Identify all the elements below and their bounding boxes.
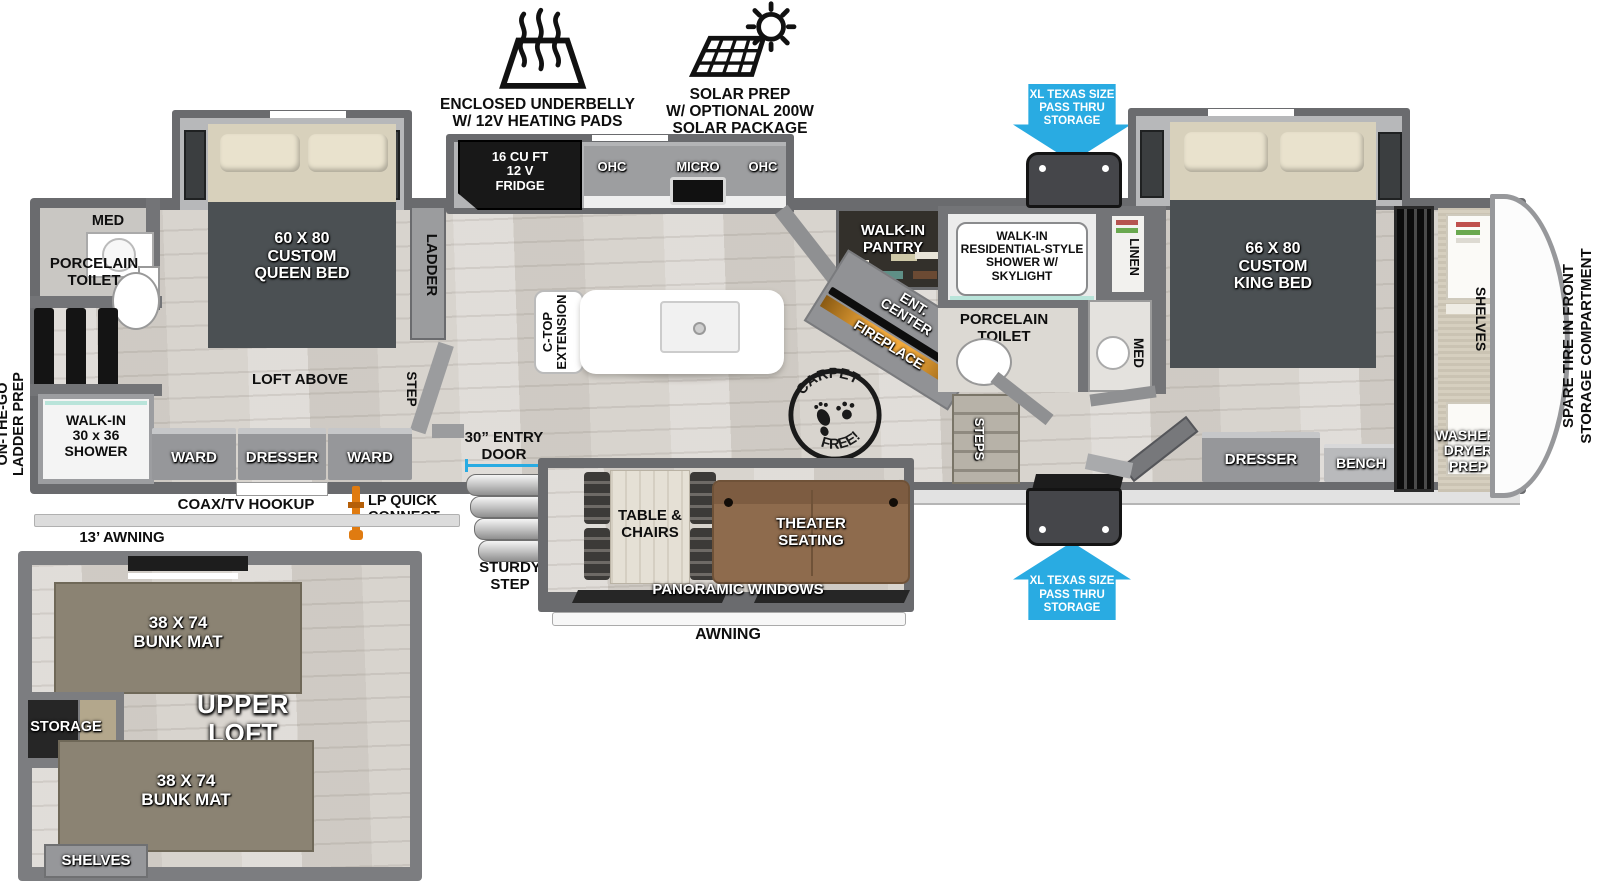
rear-med-label: MED — [70, 214, 146, 230]
cooktop-icon — [670, 177, 726, 205]
dresser-cabinet: DRESSER — [238, 428, 326, 480]
underbelly-label: ENCLOSED UNDERBELLY W/ 12V HEATING PADS — [425, 96, 650, 130]
king-bed: 66 X 80 CUSTOM KING BED — [1170, 200, 1376, 368]
theater-label: THEATER SEATING — [714, 516, 908, 549]
mid-bath-wall-right — [1152, 198, 1166, 394]
mid-shower-card: WALK-IN RESIDENTIAL-STYLE SHOWER W/ SKYL… — [956, 222, 1088, 296]
bunk-mat: 38 X 74 BUNK MAT — [58, 740, 314, 852]
ladder-bar — [34, 308, 54, 388]
bench-label: BENCH — [1324, 456, 1398, 471]
king-window-left — [1140, 130, 1164, 198]
awning-label: AWNING — [688, 626, 768, 644]
dresser-label: DRESSER — [238, 450, 326, 467]
mid-med-label: MED — [1123, 323, 1145, 383]
king-bed-label: 66 X 80 CUSTOM KING BED — [1170, 240, 1376, 293]
linen-item — [1456, 222, 1480, 227]
heating-pads-icon — [486, 6, 590, 92]
floorplan-diagram: ENCLOSED UNDERBELLY W/ 12V HEATING PADS … — [0, 0, 1600, 884]
front-dresser-label: DRESSER — [1202, 452, 1320, 469]
footprint-icon — [812, 400, 835, 438]
linen-item — [1116, 220, 1138, 225]
rear-toilet-label: PORCELAIN TOILET — [36, 256, 152, 289]
queen-pillow — [220, 134, 300, 172]
coax-port — [236, 482, 328, 496]
ward-cabinet: WARD — [328, 428, 412, 480]
cupholder-dot — [889, 498, 898, 507]
pantry-shelf-item — [913, 271, 937, 279]
lp-valve-flange — [348, 502, 364, 508]
mid-steps-label: STEPS — [964, 409, 986, 469]
mid-toilet-label: PORCELAIN TOILET — [942, 312, 1066, 345]
pass-thru-arrow-top: XL TEXAS SIZE PASS THRU STORAGE — [1013, 84, 1131, 162]
loft-shelves-box: SHELVES — [44, 844, 148, 878]
ladder-prep-label: ON-THE-GO LADDER PREP — [0, 349, 32, 499]
kitchen-window-slit — [592, 135, 668, 141]
paw-print-icon — [835, 400, 857, 421]
linen-item — [1456, 230, 1480, 235]
sink-faucet-icon — [693, 322, 706, 335]
awning13-label: 13’ AWNING — [62, 530, 182, 547]
table-chairs-label: TABLE & CHAIRS — [600, 508, 700, 541]
pass-thru-arrow-bottom: XL TEXAS SIZE PASS THRU STORAGE — [1013, 542, 1131, 620]
front-shelves-label: SHELVES — [1466, 279, 1488, 359]
mid-shower-label: WALK-IN RESIDENTIAL-STYLE SHOWER W/ SKYL… — [958, 230, 1086, 283]
queen-bed: 60 X 80 CUSTOM QUEEN BED — [208, 202, 396, 348]
front-cap — [1490, 194, 1570, 498]
mid-bath-divider — [1078, 300, 1088, 392]
ladder-bar — [66, 308, 86, 388]
king-slide-window-slit — [1208, 109, 1294, 116]
step-label: STEP — [396, 359, 418, 419]
latch-dot — [1039, 526, 1046, 533]
queen-window-left — [184, 130, 206, 200]
bunk-mat: 38 X 74 BUNK MAT — [54, 582, 302, 694]
rear-shower-label: WALK-IN 30 x 36 SHOWER — [43, 413, 149, 459]
ohc-right-label: OHC — [742, 160, 784, 174]
loft-above-label: LOFT ABOVE — [238, 372, 362, 389]
shower-glass — [45, 401, 147, 405]
pass-thru-top-label: XL TEXAS SIZE PASS THRU STORAGE — [1030, 89, 1115, 129]
ladder-bar — [98, 308, 118, 388]
rear-walkin-shower: WALK-IN 30 x 36 SHOWER — [38, 394, 154, 484]
micro-label: MICRO — [664, 160, 732, 174]
queen-slide-window-slit — [270, 111, 346, 118]
body-skirt — [905, 490, 1520, 505]
pantry-shelf-item — [915, 252, 939, 259]
loft-window — [128, 556, 248, 571]
bench: BENCH — [1324, 444, 1398, 482]
loft-storage-label: STORAGE — [22, 720, 110, 736]
queen-pillow — [308, 134, 388, 172]
solar-label: SOLAR PREP W/ OPTIONAL 200W SOLAR PACKAG… — [650, 86, 830, 137]
awning-rail-13 — [34, 514, 460, 527]
latch-dot — [1102, 526, 1109, 533]
fridge: 16 CU FT 12 V FRIDGE — [458, 140, 582, 210]
queen-bed-label: 60 X 80 CUSTOM QUEEN BED — [208, 230, 396, 283]
bunk-mat-label: 38 X 74 BUNK MAT — [56, 614, 300, 651]
lp-valve-nozzle — [349, 530, 363, 540]
ward-label: WARD — [328, 450, 412, 467]
ohc-left-label: OHC — [588, 160, 636, 174]
king-pillow — [1184, 132, 1268, 172]
ladder-label: LADDER — [417, 230, 439, 300]
pass-thru-storage-top — [1026, 152, 1122, 208]
king-window-right — [1378, 132, 1402, 200]
linen-item — [1456, 238, 1480, 243]
latch-dot — [1102, 165, 1109, 172]
measure-tick — [465, 459, 468, 472]
awning-rail-main — [552, 612, 906, 626]
carpet-free-stamp: CARPET FREE! — [777, 357, 893, 473]
coax-label: COAX/TV HOOKUP — [168, 497, 324, 514]
linen-label: LINEN — [1118, 227, 1140, 287]
fridge-label: 16 CU FT 12 V FRIDGE — [460, 150, 580, 193]
spare-tire-label: SPARE TIRE IN FRONT STORAGE COMPARTMENT — [1560, 211, 1600, 481]
ward-cabinet: WARD — [152, 428, 236, 480]
panoramic-windows-label: PANORAMIC WINDOWS — [640, 582, 836, 599]
upper-loft-title: UPPER LOFT — [178, 690, 308, 747]
ward-label: WARD — [152, 450, 236, 467]
loft-shelves-label: SHELVES — [46, 853, 146, 870]
latch-dot — [1039, 165, 1046, 172]
cupholder-dot — [724, 498, 733, 507]
loft-window-slit — [128, 573, 238, 579]
mid-shower-glass — [950, 296, 1094, 300]
front-dresser: DRESSER — [1202, 432, 1320, 482]
pass-thru-bottom-label: XL TEXAS SIZE PASS THRU STORAGE — [1030, 575, 1115, 615]
ladder-bars-icon — [34, 308, 122, 388]
pantry-shelf-item — [891, 254, 917, 261]
theater-seating: THEATER SEATING — [712, 480, 910, 584]
ctop-label: C-TOP EXTENSION — [541, 287, 577, 377]
pass-thru-storage-bottom — [1026, 488, 1122, 546]
kitchen-island — [580, 290, 784, 374]
king-pillow — [1280, 132, 1364, 172]
solar-panel-icon — [683, 0, 798, 86]
bunk-mat-label: 38 X 74 BUNK MAT — [60, 772, 312, 809]
